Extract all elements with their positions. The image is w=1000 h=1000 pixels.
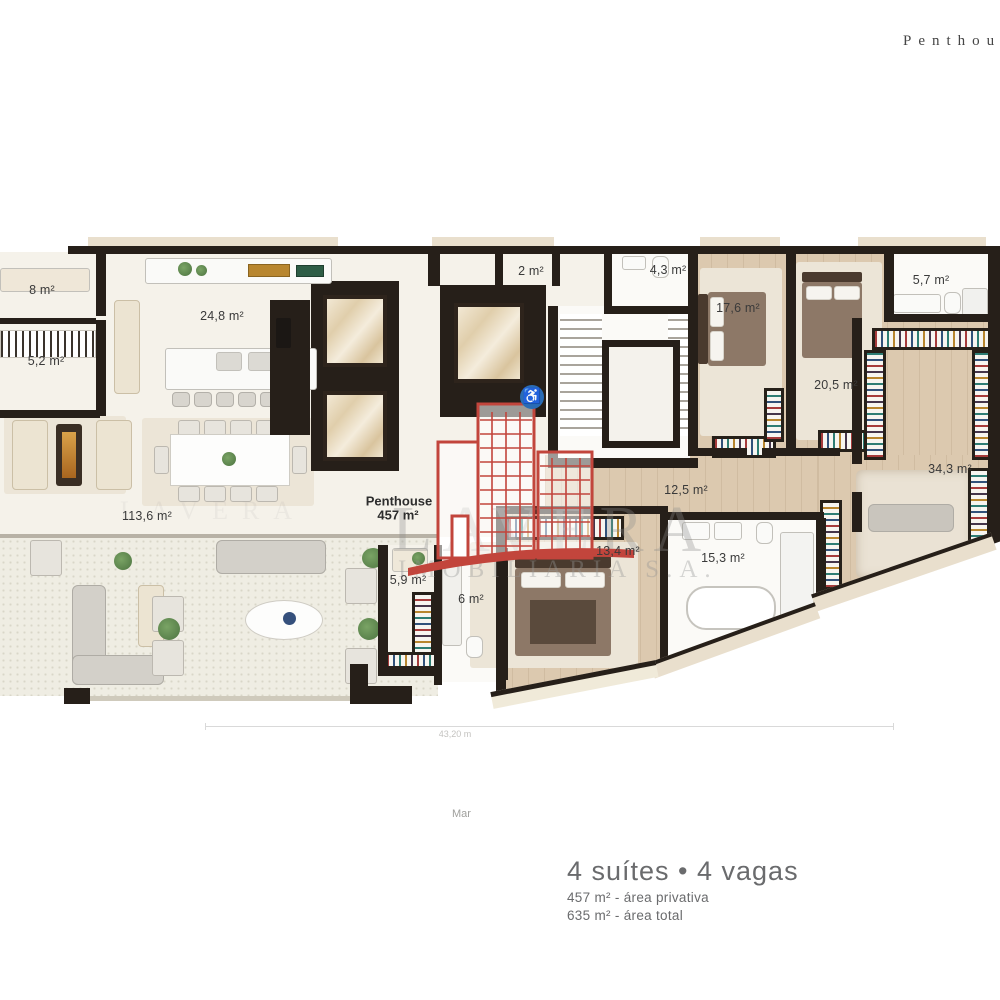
- wall-terrace-post-left: [64, 688, 90, 704]
- wall-bath43-bottom: [604, 306, 698, 314]
- wall-closet59-bottom: [378, 666, 442, 676]
- wall-hall-stub1: [428, 252, 440, 286]
- wall-suite3-bottom-a: [796, 448, 840, 456]
- room-label-laundry: 8 m²: [29, 283, 55, 297]
- island-stool-3: [216, 392, 234, 407]
- footer-private-area: 457 m² - área privativa: [567, 890, 709, 905]
- room-label-corridor: 12,5 m²: [664, 483, 708, 497]
- terrace-table-bowl: [283, 612, 296, 625]
- kitchen-bottle-rack: [248, 264, 290, 277]
- master-wardrobe-left: [864, 350, 886, 460]
- terrace-armchair-1: [30, 540, 62, 576]
- island-stool-1: [172, 392, 190, 407]
- room-label-closet59: 5,9 m²: [390, 573, 427, 587]
- wall-suite3-bath57: [884, 252, 894, 322]
- kitchen-green-boxes: [296, 265, 324, 277]
- room-label-hall: 2 m²: [518, 264, 544, 278]
- master-wardrobe-top: [872, 328, 994, 350]
- wall-right-outer: [988, 246, 1000, 546]
- wall-bath43-left: [604, 252, 612, 310]
- fireplace-sofa-left: [12, 420, 48, 490]
- wall-hall2-right: [552, 252, 560, 286]
- fire-table-coals: [62, 432, 76, 478]
- dining-chair-9: [154, 446, 169, 474]
- dining-centerpiece: [222, 452, 236, 466]
- elevator-car-1: [323, 295, 387, 367]
- wall-laundry-right: [96, 252, 106, 316]
- suite4-blanket: [530, 600, 596, 644]
- wall-master-left-lower: [852, 492, 862, 532]
- terrace-flowers-right: [358, 618, 380, 640]
- suite2-wardrobe-v: [764, 388, 784, 442]
- terrace-armchair-4: [345, 568, 377, 604]
- elevator-car-2: [323, 391, 387, 461]
- sea-label: Mar: [452, 808, 471, 820]
- kitchen-plant-2: [196, 265, 207, 276]
- dimension-label: 43,20 m: [439, 729, 472, 739]
- island-stool-4: [238, 392, 256, 407]
- terrace-lsofa-h: [72, 655, 164, 685]
- wall-hall2-left: [495, 252, 503, 286]
- wall-suite2-bottom-a: [695, 448, 747, 456]
- top-ledge-right: [858, 237, 986, 246]
- bath43-sink: [622, 256, 646, 270]
- top-ledge-center: [432, 237, 554, 246]
- master-bench: [868, 504, 954, 532]
- bath57-counter: [893, 294, 941, 313]
- island-sink-1: [216, 352, 242, 371]
- wall-bath57-bottom: [886, 314, 1000, 322]
- terrace-flowers-left: [158, 618, 180, 640]
- terrace-armchair-3: [152, 640, 184, 676]
- dimension-tick-left: [205, 723, 206, 730]
- room-label-kitchen: 24,8 m²: [200, 309, 244, 323]
- page-title: Penthouse: [903, 33, 1000, 50]
- dimension-line: [205, 726, 893, 727]
- elevator-car-3: [454, 303, 524, 383]
- room-label-bath6: 6 m²: [458, 592, 484, 606]
- kitchen-cabinet-column: [114, 300, 140, 394]
- room-label-living: 113,6 m²: [122, 509, 172, 523]
- footer-total-area: 635 m² - área total: [567, 908, 683, 923]
- suite3-bed-headboard: [802, 272, 862, 282]
- room-label-suite3: 20,5 m²: [814, 378, 858, 392]
- room-label-bath43: 4,3 m²: [650, 263, 687, 277]
- suite3-pillow-1: [806, 286, 832, 300]
- mbath-toilet: [756, 522, 773, 544]
- wall-closet59-left: [378, 545, 388, 673]
- dimension-tick-right: [893, 723, 894, 730]
- suite2-bed-headboard: [698, 294, 708, 364]
- living-terrace-glass: [0, 534, 438, 538]
- wall-laundry-pantry: [0, 318, 96, 324]
- wheelchair-icon: ♿: [520, 385, 544, 409]
- room-label-master: 34,3 m²: [928, 462, 972, 476]
- cooktop: [276, 318, 291, 348]
- unit-area-label: 457 m²: [377, 508, 418, 523]
- bath6-toilet: [466, 636, 483, 658]
- bath57-toilet: [944, 292, 961, 314]
- room-label-suite2: 17,6 m²: [716, 301, 760, 315]
- top-ledge-suite: [700, 237, 780, 246]
- wall-suite2-bottom-b: [762, 448, 796, 456]
- terrace-plant-small: [114, 552, 132, 570]
- room-label-bath57: 5,7 m²: [913, 273, 950, 287]
- wall-suite2-left: [688, 252, 698, 456]
- terrace-sofa: [216, 540, 326, 574]
- fireplace-sofa-right: [96, 420, 132, 490]
- bath57-shower: [962, 288, 988, 316]
- suite2-pillow-2: [710, 331, 724, 361]
- wall-pantry-right: [96, 320, 106, 416]
- footer-headline: 4 suítes • 4 vagas: [567, 856, 799, 887]
- terrace-rail: [86, 696, 354, 701]
- suite3-pillow-2: [834, 286, 860, 300]
- bath43-floor: [604, 252, 696, 308]
- kitchen-plant-1: [178, 262, 192, 276]
- dining-chair-10: [292, 446, 307, 474]
- wall-terrace-corner-h: [350, 686, 412, 704]
- wall-suite2-suite3: [786, 252, 796, 450]
- wall-pantry-bottom: [0, 410, 100, 418]
- mbath-sink-2: [714, 522, 742, 540]
- floorplan-page: ♿: [0, 0, 1000, 1000]
- room-label-suite4: 13,4 m²: [596, 544, 640, 558]
- room-label-pantry: 5,2 m²: [28, 354, 65, 368]
- room-label-mbath: 15,3 m²: [701, 551, 745, 565]
- island-stool-2: [194, 392, 212, 407]
- top-ledge-left: [88, 237, 338, 246]
- unit-name-label: Penthouse: [366, 494, 432, 509]
- wall-top: [68, 246, 988, 254]
- fire-table: [56, 424, 82, 486]
